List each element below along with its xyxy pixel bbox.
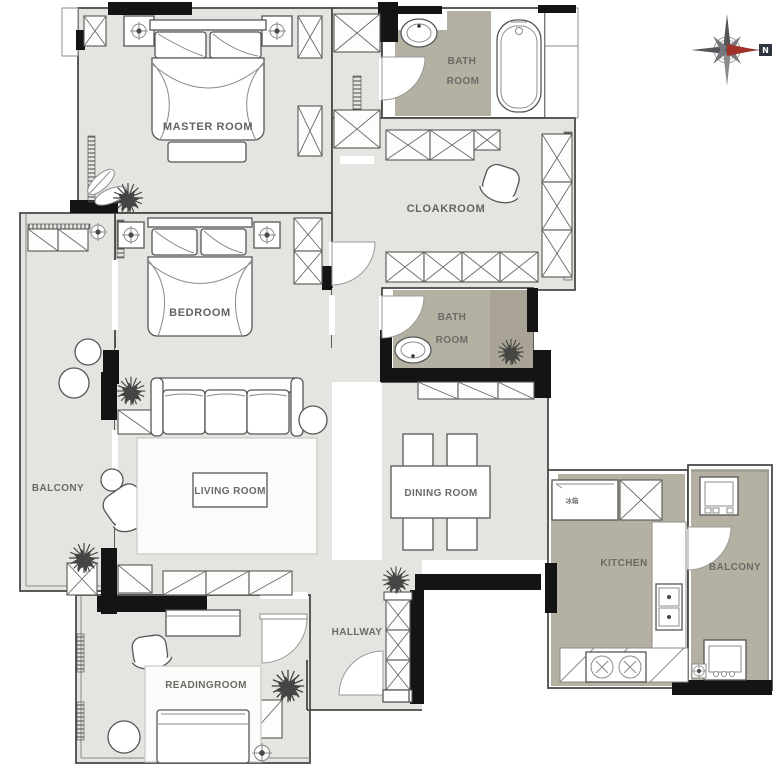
stool [108, 721, 140, 753]
label-reading-room: READINGROOM [165, 680, 247, 691]
floor-plan-drawing: N MASTER ROOM BATH ROOM CLOAKROOM BEDROO… [0, 0, 780, 784]
balcony-left-floor [20, 213, 115, 591]
label-living-room: LIVING ROOM [194, 486, 266, 497]
desk [166, 610, 240, 636]
shaft-right [545, 8, 578, 118]
label-balcony-right: BALCONY [709, 562, 761, 573]
bath-mid-shower [490, 290, 533, 380]
label-hallway: HALLWAY [332, 627, 383, 638]
label-bedroom: BEDROOM [169, 307, 231, 319]
label-cloakroom: CLOAKROOM [407, 203, 486, 215]
compass-needle [727, 44, 757, 56]
reading-bed [157, 710, 249, 763]
label-dining-room: DINING ROOM [404, 488, 477, 499]
floor-plan: N MASTER ROOM BATH ROOM CLOAKROOM BEDROO… [0, 0, 780, 784]
living-sofa [151, 378, 303, 436]
label-bath-mid-1: BATH [438, 312, 467, 323]
compass: N [691, 14, 772, 86]
label-kitchen: KITCHEN [600, 558, 647, 569]
compass-north-label: N [762, 46, 769, 55]
fridge [552, 480, 618, 520]
label-balcony-left: BALCONY [32, 483, 84, 494]
label-fridge: 冰箱 [566, 496, 580, 505]
corridor-floor [332, 288, 382, 382]
label-bath-top-1: BATH [448, 56, 477, 67]
label-bath-top-2: ROOM [447, 76, 480, 87]
entry-door-leaf [383, 690, 409, 702]
ledge-top-left [62, 8, 78, 56]
label-bath-mid-2: ROOM [436, 335, 469, 346]
label-master-room: MASTER ROOM [163, 121, 253, 133]
